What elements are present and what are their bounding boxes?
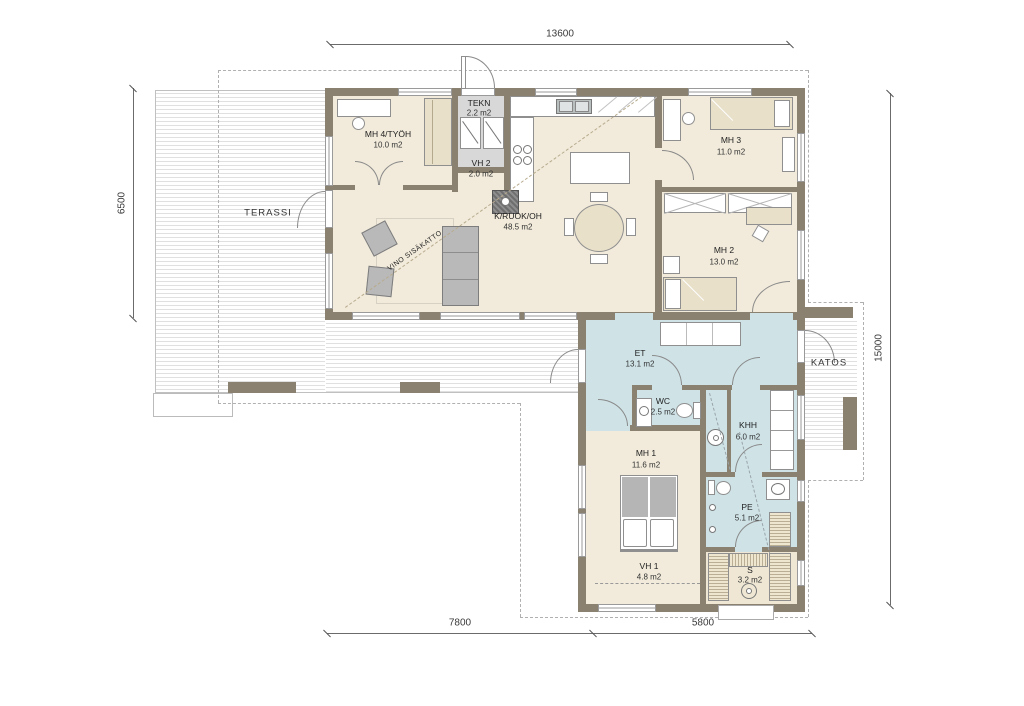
window [598,604,656,612]
window [352,312,420,320]
doorway [735,547,762,552]
terrace-edge [155,90,325,91]
wall [655,96,662,148]
room-name: MH 1 [636,448,656,458]
sauna-stove-center [746,588,752,594]
wall [333,185,355,190]
room-name: MH 3 [721,135,741,145]
roof-outline [808,480,809,617]
terrace-beam [400,382,440,393]
wall [706,547,735,552]
fireplace-flue [501,197,510,206]
dim-label-bottom-left: 7800 [449,618,471,629]
dining-chair [590,192,608,202]
dim-line-top [330,44,790,45]
stove-burner [523,156,532,165]
toilet-tank [708,480,715,495]
main-entrance-door [797,330,805,363]
sauna-bench [769,553,791,601]
dining-chair [590,254,608,264]
roof-outline [218,70,808,71]
window [797,480,805,502]
toilet-bowl [716,481,731,495]
dim-label-left: 6500 [117,192,128,214]
window [440,312,520,320]
doorway [732,385,760,390]
sink-basin [559,101,573,112]
wall [682,385,732,390]
daybed-line [432,100,433,164]
desk [746,207,792,225]
window [797,560,805,586]
stove-burner [513,145,522,154]
wall [706,472,735,477]
room-area: 6.0 m2 [736,433,760,442]
window [398,88,452,96]
wall [662,187,797,192]
wc-sink-bowl [639,406,649,416]
terrace-deck-lower [326,320,578,392]
kitchen-island [570,152,630,184]
pe-bench [769,512,791,547]
window [688,88,752,96]
terrace-door [325,190,333,228]
doorway [655,148,662,180]
vh1-boundary [595,583,700,584]
room-area: 2.0 m2 [469,170,493,179]
tekn-entry-door [461,88,495,96]
wall [762,472,797,477]
room-name: MH 4/TYÖH [365,129,411,139]
roof-outline [808,70,809,302]
headboard [620,549,678,552]
floor-plan: MH 4/TYÖH 10.0 m2 TEKN 2.2 m2 VH 2 2.0 m… [0,0,1024,706]
window [325,136,333,186]
room-area: 11.0 m2 [717,148,745,157]
terrace-edge [155,90,156,393]
toilet-bowl [676,403,693,418]
terrace-label: TERASSI [244,208,292,219]
pillow [665,279,681,309]
window [797,395,805,440]
room-name: K/RUOK/OH [494,211,542,221]
doorway [750,313,793,320]
doorway [652,385,682,390]
katos-post [843,397,857,450]
dining-table [574,204,624,252]
roof-outline [520,403,521,617]
cabinet-line [771,450,793,451]
dim-line-bottom-left [327,633,593,634]
katos-label: KATOS [811,358,847,369]
cabinet-line [771,430,793,431]
cabinet [782,137,795,172]
wall [403,185,452,190]
room-area: 2.5 m2 [651,408,675,417]
window [578,513,586,557]
desk-chair [352,117,365,130]
duvet [650,477,676,517]
sauna-bench [708,553,729,601]
terrace-beam [228,382,296,393]
toilet-tank [693,402,701,419]
sofa [442,226,479,306]
door-swing-arc [466,56,495,88]
dim-label-bottom-right: 5800 [692,618,714,629]
room-name: VH 2 [472,158,491,168]
room-area: 4.8 m2 [637,573,661,582]
et-terrace-door [578,349,586,383]
katos-beam [805,307,853,318]
window [797,230,805,280]
window [535,88,577,96]
room-name: KHH [739,420,757,430]
window [797,133,805,182]
window [524,312,577,320]
desk-chair [682,112,695,125]
sofa-cushion-line [443,279,478,280]
bench-line [712,323,713,345]
roof-outline [808,480,863,481]
roof-outline [218,403,520,404]
room-area: 11.6 m2 [632,461,660,470]
room-area: 48.5 m2 [504,223,533,232]
sink-basin [575,101,589,112]
sofa-cushion-line [443,252,478,253]
pillow [774,100,790,127]
dining-chair [626,218,636,236]
room-name: S [747,565,753,575]
stove-burner [513,156,522,165]
wall [655,180,662,312]
daybed [424,98,452,166]
dim-line-right [890,93,891,605]
room-area: 13.1 m2 [626,360,655,369]
roof-outline [218,70,219,403]
doorway [355,185,403,190]
window [325,253,333,309]
terrace-deck [156,90,325,392]
stove-burner [523,145,532,154]
room-name: PE [741,502,752,512]
dim-line-bottom-right [593,633,812,634]
cabinet-line [771,410,793,411]
hall-bench [660,322,741,346]
room-area: 5.1 m2 [735,514,759,523]
desk [663,99,681,141]
duvet [622,477,648,517]
dim-line-left [133,88,134,318]
room-area: 13.0 m2 [710,258,739,267]
room-name: VH 1 [640,561,659,571]
room-name: TEKN [468,98,491,108]
room-name: ET [635,348,646,358]
window [578,465,586,509]
desk [337,99,391,117]
pe-sink-bowl [771,483,785,495]
shower-valve [709,526,716,533]
room-area: 3.2 m2 [738,576,762,585]
pillow [623,519,647,547]
pillow [650,519,674,547]
room-name: WC [656,396,670,406]
room-area: 10.0 m2 [374,141,403,150]
sauna-step [718,605,774,620]
wall [452,96,458,192]
dim-label-top: 13600 [546,29,574,40]
roof-outline [863,302,864,480]
roof-outline [808,302,863,303]
doorway [615,313,653,320]
dining-chair [564,218,574,236]
washing-machine-center [713,435,719,441]
room-name: MH 2 [714,245,734,255]
terrace-step [153,393,233,417]
nightstand [663,256,680,274]
dim-label-right: 15000 [874,334,885,362]
room-area: 2.2 m2 [467,109,491,118]
bench-line [686,323,687,345]
shower-valve [709,504,716,511]
